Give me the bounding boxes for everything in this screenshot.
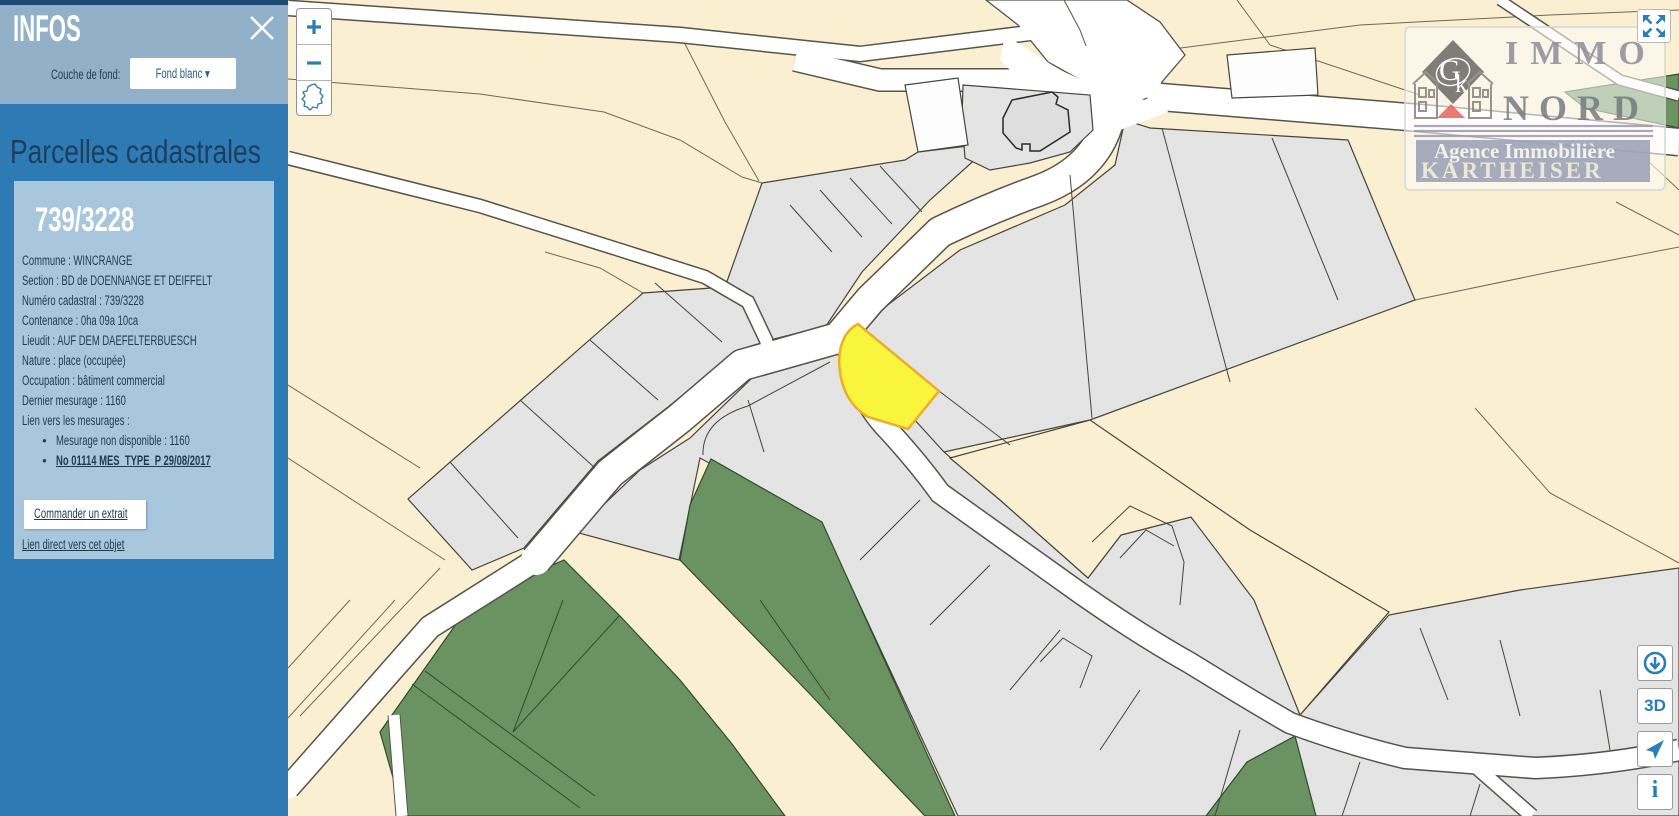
svg-text:k: k (1455, 71, 1468, 98)
svg-text:NORD: NORD (1503, 88, 1649, 128)
svg-text:IMMO: IMMO (1505, 35, 1657, 72)
svg-text:KARTHEISER: KARTHEISER (1421, 158, 1604, 183)
